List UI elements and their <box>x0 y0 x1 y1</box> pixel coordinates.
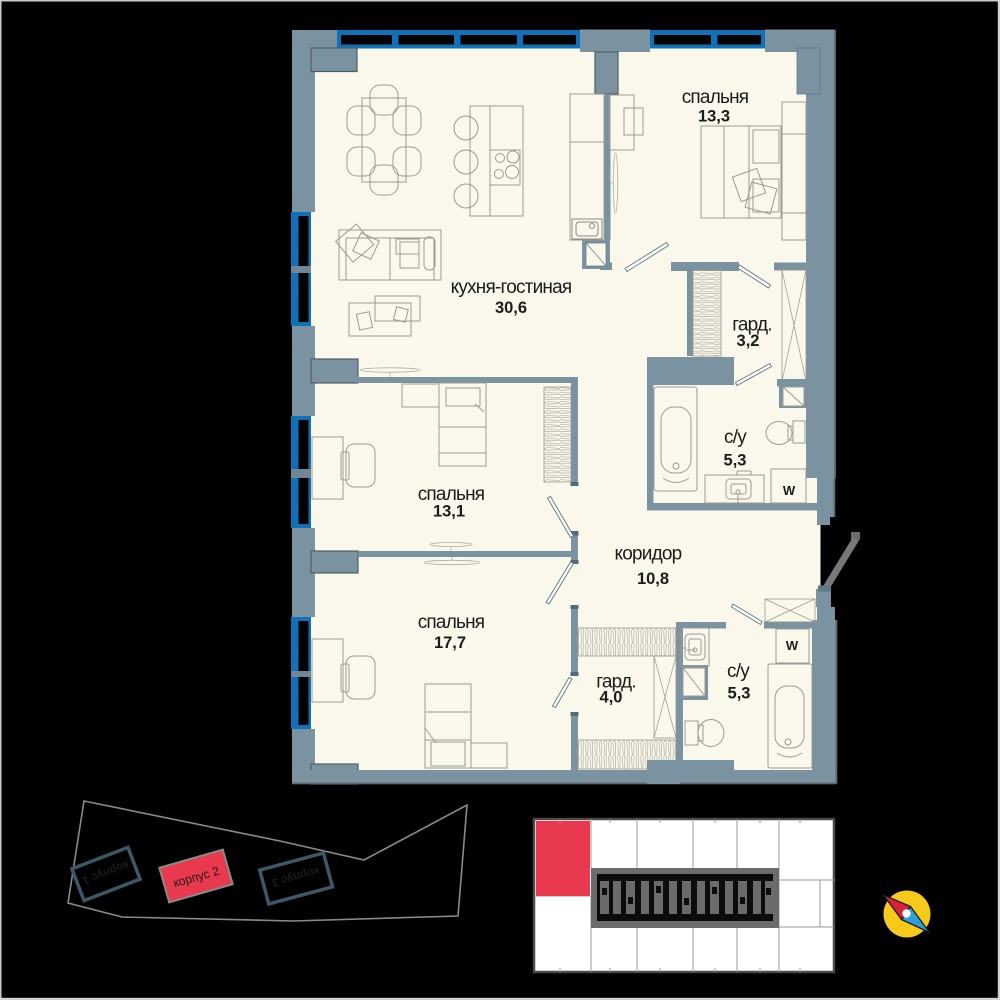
svg-text:5,3: 5,3 <box>728 685 751 703</box>
svg-text:W: W <box>783 483 796 498</box>
svg-text:5,3: 5,3 <box>724 452 747 470</box>
svg-text:с/у: с/у <box>727 661 750 682</box>
svg-text:13,3: 13,3 <box>698 108 730 126</box>
svg-text:кухня-гостиная: кухня-гостиная <box>451 277 572 298</box>
svg-text:17,7: 17,7 <box>434 634 466 652</box>
svg-text:4,0: 4,0 <box>600 689 623 707</box>
svg-text:с/у: с/у <box>724 427 747 448</box>
svg-text:спальня: спальня <box>682 87 749 108</box>
svg-text:13,1: 13,1 <box>433 503 465 521</box>
svg-text:3,2: 3,2 <box>737 332 760 350</box>
svg-text:коридор: коридор <box>615 544 682 565</box>
svg-text:W: W <box>786 638 799 653</box>
svg-text:спальня: спальня <box>418 612 485 633</box>
svg-text:30,6: 30,6 <box>495 299 527 317</box>
svg-text:10,8: 10,8 <box>637 570 669 588</box>
